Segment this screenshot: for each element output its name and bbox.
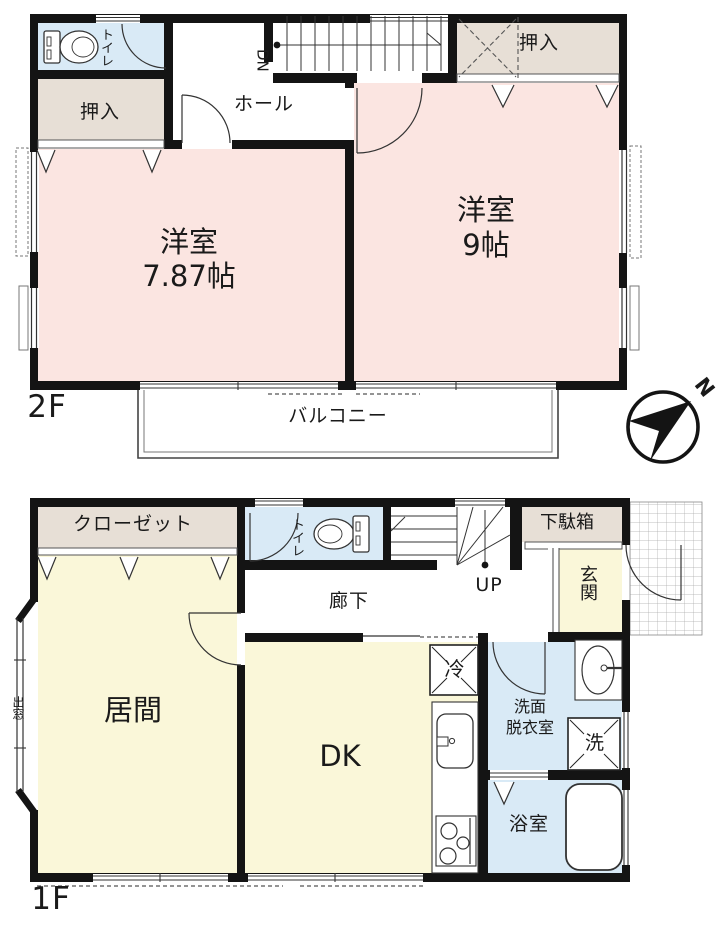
- label-2f-stairs-dn: DN: [254, 42, 271, 78]
- toilet-icon-1f: [314, 516, 369, 552]
- label-1f-living: 居間: [83, 694, 183, 726]
- label-floor-1f: 1F: [28, 882, 74, 917]
- toilet-icon-2f: [44, 31, 98, 63]
- label-washroom-line2: 脱衣室: [494, 719, 566, 737]
- label-1f-closet: クローゼット: [53, 514, 213, 535]
- faucet-icon: [437, 737, 448, 746]
- label-1f-dk: DK: [305, 740, 375, 772]
- floor-plan-drawing: [0, 0, 720, 932]
- label-2f-bedroom-left-size: 7.87帖: [114, 260, 264, 292]
- bathtub-icon: [566, 784, 622, 870]
- label-refrigerator: 冷: [441, 658, 468, 680]
- kitchen-counter: [432, 702, 478, 873]
- floor-plan: トイレ 押入 ホール DN 押入 洋室 7.87帖 洋室 9帖 バルコニー 2F…: [0, 0, 720, 932]
- washbasin-icon: [575, 640, 622, 700]
- label-2f-closet-right: 押入: [499, 33, 579, 54]
- 2f-stairs: [274, 16, 441, 71]
- label-1f-bay-window: 出窓: [12, 687, 24, 729]
- label-2f-bedroom-left-name: 洋室: [134, 226, 244, 258]
- label-1f-corridor: 廊下: [326, 591, 372, 612]
- label-1f-shoe-cabinet: 下駄箱: [529, 513, 605, 533]
- label-floor-2f: 2F: [24, 390, 70, 425]
- label-2f-bedroom-right-name: 洋室: [431, 194, 541, 226]
- label-1f-bathroom: 浴室: [500, 814, 558, 835]
- label-washer: 洗: [581, 733, 608, 754]
- label-2f-hall: ホール: [224, 94, 304, 115]
- label-washroom-line1: 洗面: [494, 698, 566, 716]
- label-balcony: バルコニー: [283, 406, 393, 427]
- label-2f-bedroom-right-size: 9帖: [431, 229, 541, 261]
- 1f-stairs: [391, 507, 510, 568]
- label-1f-toilet: トイレ: [290, 511, 303, 563]
- label-2f-closet-left: 押入: [60, 102, 140, 123]
- label-2f-toilet: トイレ: [99, 21, 112, 73]
- entrance-porch-tiles: [630, 502, 702, 635]
- door-arc-2f-hall: [182, 95, 230, 143]
- label-1f-entrance: 玄関: [578, 552, 596, 614]
- label-1f-stairs-up: UP: [471, 575, 507, 596]
- compass-icon: [628, 392, 698, 462]
